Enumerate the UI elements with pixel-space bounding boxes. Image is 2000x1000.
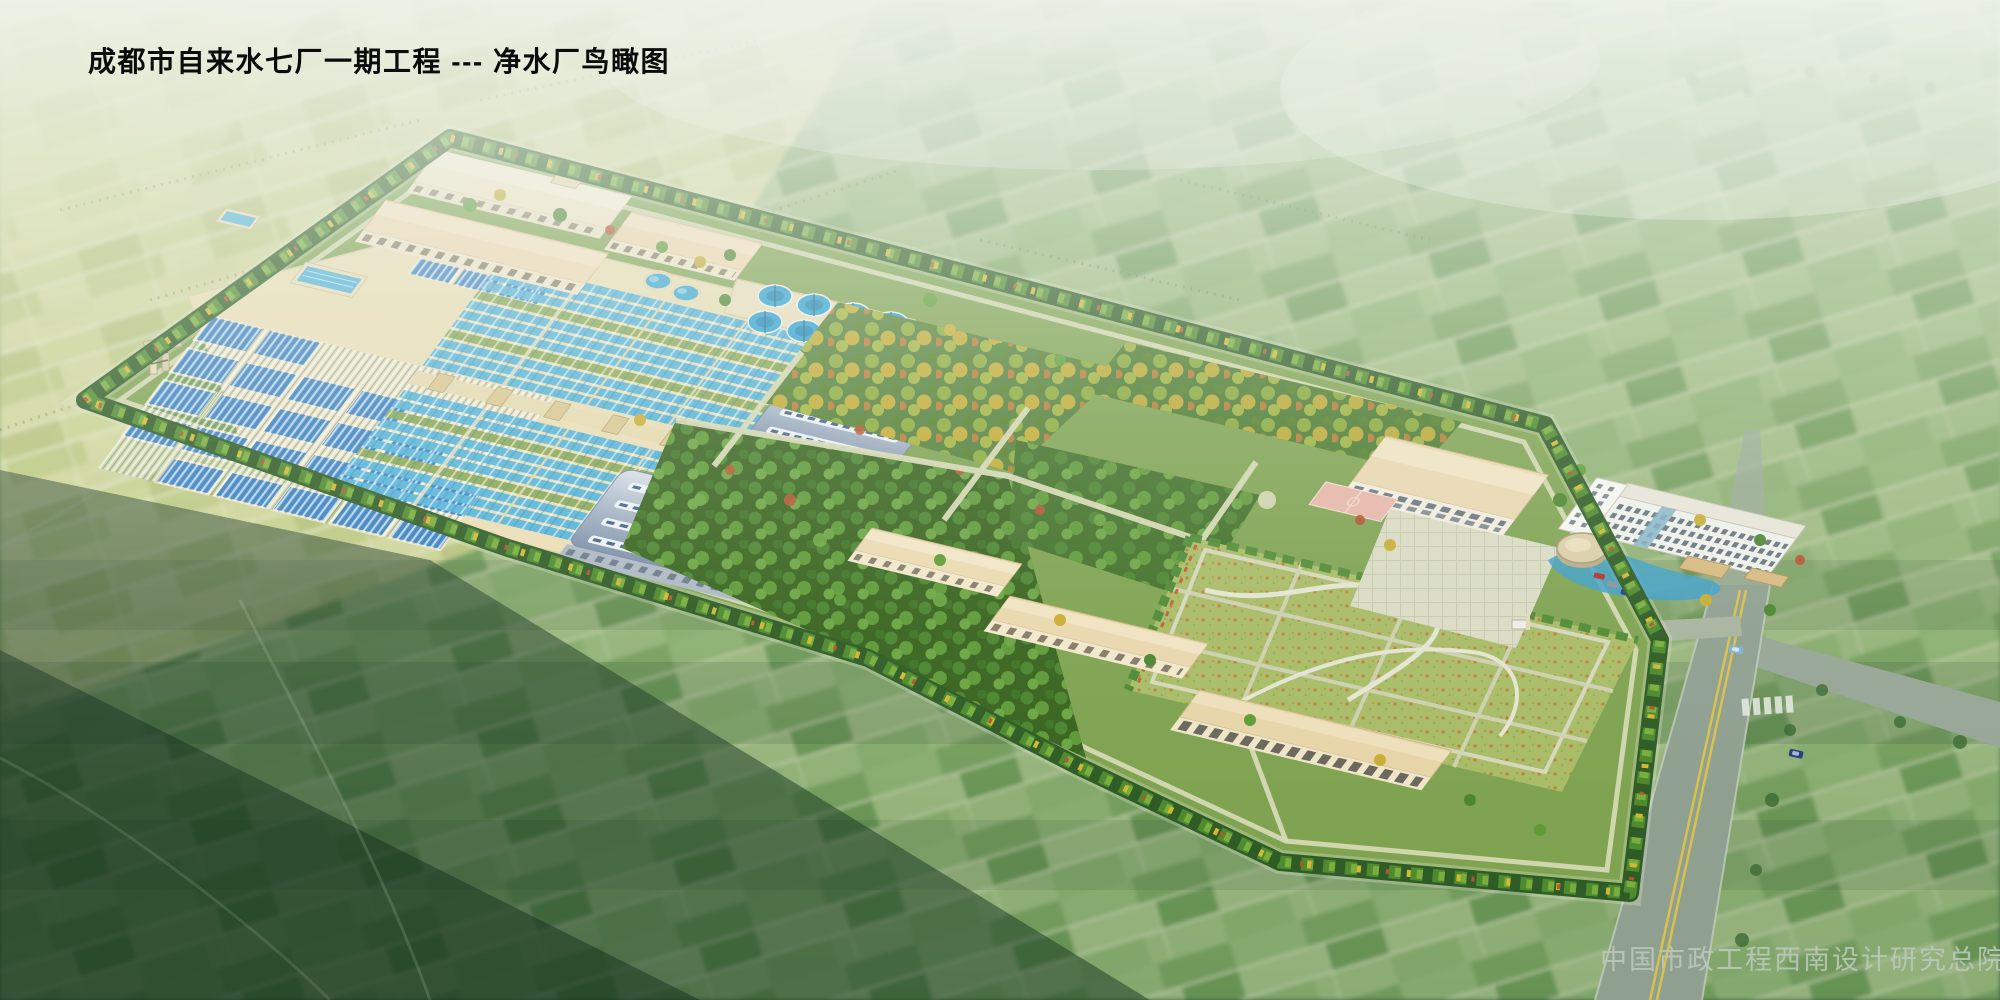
birdseye-rendering-page: 成都市自来水七厂一期工程 --- 净水厂鸟瞰图 中国市政工程西南设计研究总院 [0, 0, 2000, 1000]
atmospheric-haze [0, 0, 2000, 1000]
design-institute-credit: 中国市政工程西南设计研究总院 [1600, 938, 2000, 977]
rendering-scene [0, 0, 2000, 1000]
page-title: 成都市自来水七厂一期工程 --- 净水厂鸟瞰图 [88, 40, 670, 80]
